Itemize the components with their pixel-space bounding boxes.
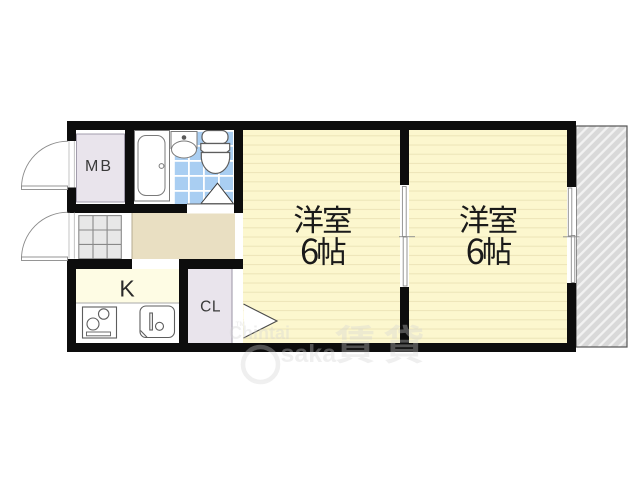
svg-text:TM: TM [236,321,245,328]
svg-text:MB: MB [85,158,113,175]
svg-text:K: K [119,276,135,302]
svg-text:saka: saka [281,340,338,368]
svg-text:CL: CL [200,298,221,315]
